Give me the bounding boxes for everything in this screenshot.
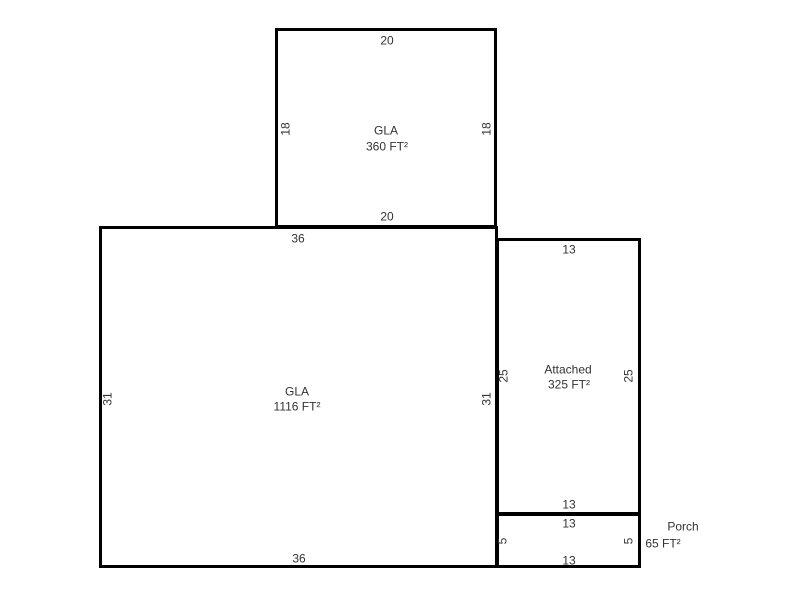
- dim-label-attached-right: 25: [622, 369, 635, 382]
- dim-label-gla-upper-right: 18: [480, 122, 493, 135]
- dim-label-porch-bottom: 13: [562, 554, 575, 567]
- dim-label-porch-left: 5: [496, 538, 509, 545]
- dim-label-gla-main-right: 31: [480, 392, 493, 405]
- area-name-label-porch: Porch: [667, 520, 698, 533]
- dim-label-attached-bottom: 13: [562, 498, 575, 511]
- area-area-label-attached: 325 FT²: [548, 378, 590, 391]
- area-area-label-porch: 65 FT²: [645, 537, 680, 550]
- dim-label-porch-right: 5: [622, 538, 635, 545]
- floorplan-sketch: GLA360 FT²20181820GLA1116 FT²36313136Att…: [0, 0, 800, 600]
- area-name-label-gla-upper: GLA: [374, 124, 398, 137]
- dim-label-porch-top: 13: [562, 517, 575, 530]
- area-name-label-attached: Attached: [544, 363, 591, 376]
- dim-label-gla-upper-bottom: 20: [380, 210, 393, 223]
- dim-label-gla-upper-top: 20: [380, 34, 393, 47]
- dim-label-attached-top: 13: [562, 243, 575, 256]
- dim-label-attached-left: 25: [497, 369, 510, 382]
- dim-label-gla-main-left: 31: [101, 392, 114, 405]
- area-name-label-gla-main: GLA: [285, 385, 309, 398]
- dim-label-gla-main-top: 36: [291, 232, 304, 245]
- area-area-label-gla-upper: 360 FT²: [366, 140, 408, 153]
- dim-label-gla-main-bottom: 36: [292, 552, 305, 565]
- dim-label-gla-upper-left: 18: [279, 122, 292, 135]
- area-area-label-gla-main: 1116 FT²: [274, 400, 321, 413]
